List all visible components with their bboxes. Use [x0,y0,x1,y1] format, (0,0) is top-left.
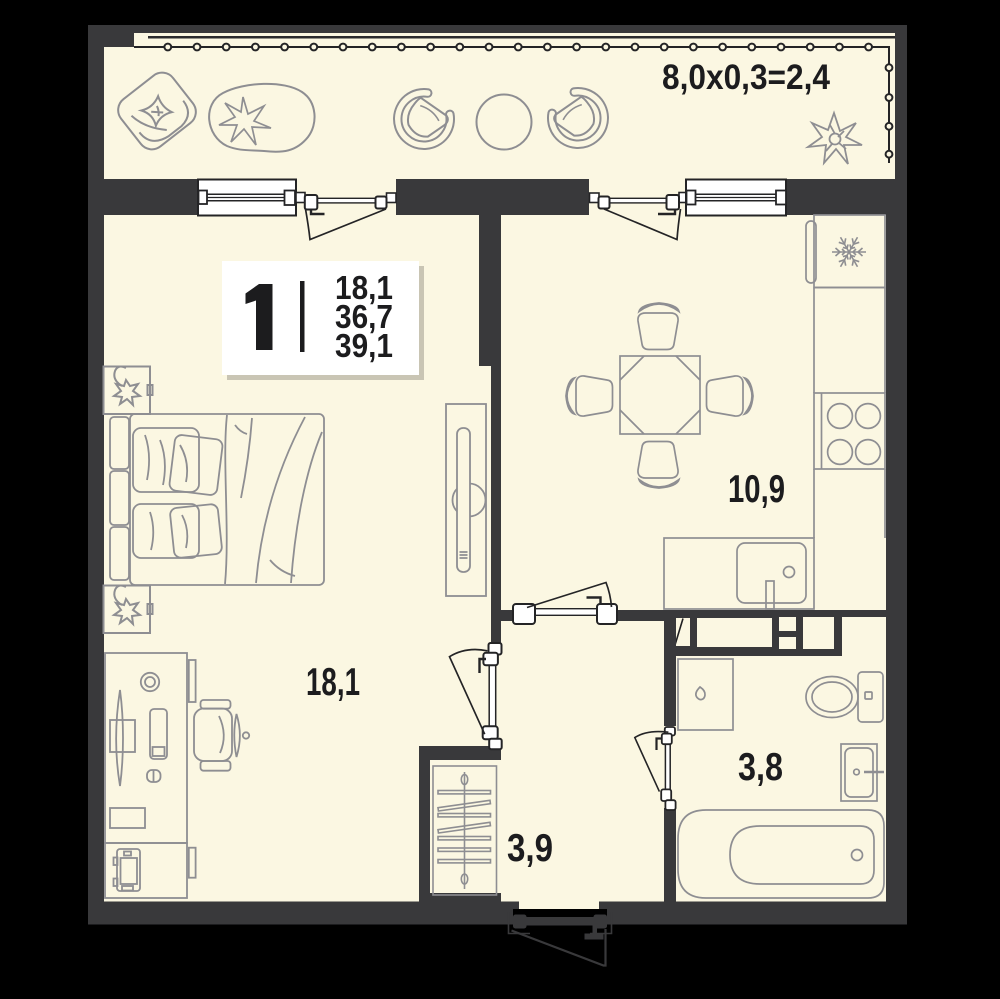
svg-text:8,0x0,3=2,4: 8,0x0,3=2,4 [662,58,830,97]
svg-text:3,9: 3,9 [507,827,553,870]
svg-text:10,9: 10,9 [728,468,785,511]
svg-text:39,1: 39,1 [335,327,393,364]
svg-text:3,8: 3,8 [738,746,783,789]
svg-text:18,1: 18,1 [306,661,360,704]
